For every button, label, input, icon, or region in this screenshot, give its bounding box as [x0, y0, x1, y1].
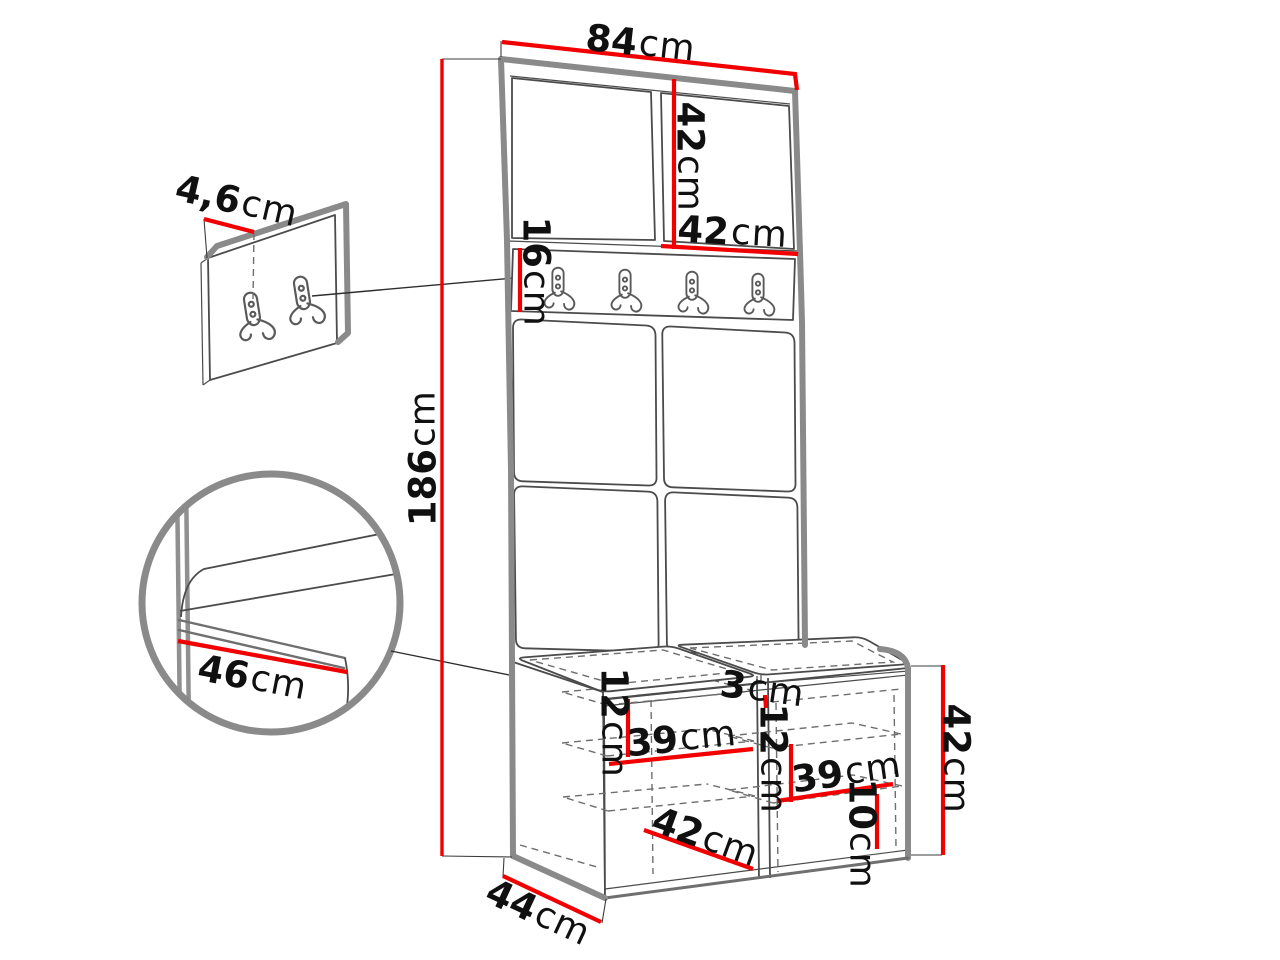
- svg-text:186: 186: [402, 449, 445, 526]
- label-overall-width: 84 cm: [583, 16, 697, 71]
- svg-text:46: 46: [194, 646, 253, 698]
- svg-text:cm: cm: [516, 270, 557, 327]
- svg-text:cm: cm: [237, 182, 302, 235]
- label-door-width: 42 cm: [676, 207, 789, 256]
- svg-text:42: 42: [669, 102, 712, 154]
- svg-text:39: 39: [789, 752, 846, 802]
- callout-line-wall-panel: [312, 278, 514, 296]
- label-door-height: 42 cm: [669, 102, 712, 212]
- svg-text:cm: cm: [670, 155, 711, 212]
- label-overall-height: 186 cm: [402, 390, 445, 526]
- svg-text:42: 42: [935, 704, 978, 756]
- svg-text:12: 12: [593, 668, 636, 720]
- svg-text:cm: cm: [842, 832, 883, 889]
- padded-back-panels: [513, 319, 799, 654]
- label-bench-height: 42 cm: [935, 704, 978, 814]
- label-hook-panel-height: 16 cm: [515, 217, 558, 327]
- svg-text:cm: cm: [403, 390, 444, 447]
- svg-text:cm: cm: [936, 757, 977, 814]
- svg-text:12: 12: [752, 704, 795, 756]
- svg-text:16: 16: [515, 217, 558, 269]
- svg-text:cm: cm: [753, 757, 794, 814]
- svg-text:4,6: 4,6: [171, 166, 245, 223]
- callout-line-bench-corner: [391, 651, 509, 675]
- furniture-dimension-diagram: 84 cm 42 cm 42 cm 16 cm 186 cm 4,6 cm 46…: [0, 0, 1280, 960]
- svg-text:cm: cm: [637, 23, 698, 70]
- label-bottom-gap: 10 cm: [841, 779, 884, 889]
- svg-text:42: 42: [676, 207, 730, 253]
- svg-text:10: 10: [841, 779, 884, 831]
- svg-text:84: 84: [583, 16, 639, 64]
- svg-text:cm: cm: [730, 212, 789, 256]
- svg-text:39: 39: [625, 718, 680, 766]
- svg-text:cm: cm: [678, 713, 739, 759]
- diagram-page: 84 cm 42 cm 42 cm 16 cm 186 cm 4,6 cm 46…: [0, 0, 1280, 960]
